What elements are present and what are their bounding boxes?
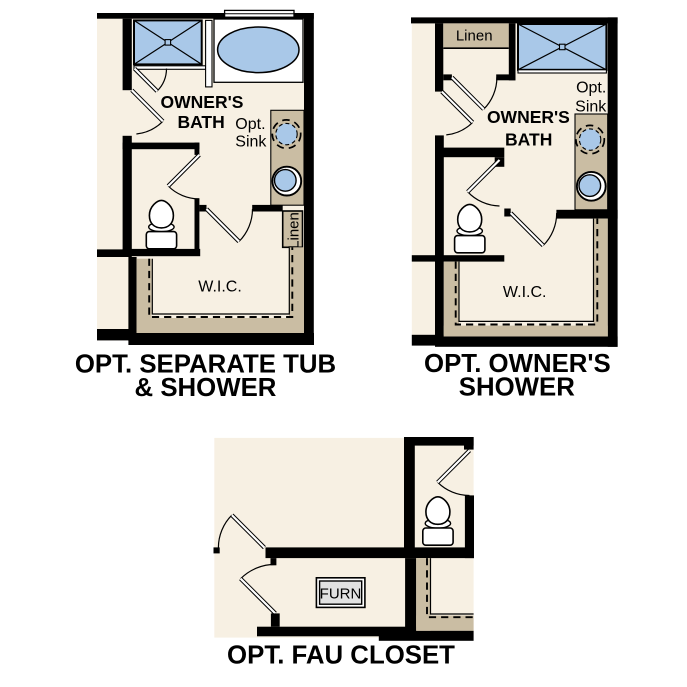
svg-text:Opt.: Opt.	[576, 79, 606, 96]
svg-text:FURN: FURN	[320, 585, 362, 602]
svg-text:& SHOWER: & SHOWER	[135, 374, 277, 402]
svg-text:W.I.C.: W.I.C.	[198, 279, 242, 296]
svg-text:Sink: Sink	[235, 133, 267, 150]
svg-text:Opt.: Opt.	[235, 116, 265, 133]
svg-text:Linen: Linen	[456, 27, 493, 44]
svg-text:OPT. FAU CLOSET: OPT. FAU CLOSET	[227, 641, 455, 669]
svg-text:BATH: BATH	[177, 112, 224, 132]
svg-text:OWNER'S: OWNER'S	[487, 107, 570, 127]
svg-text:W.I.C.: W.I.C.	[503, 284, 547, 301]
svg-text:Linen: Linen	[286, 212, 303, 249]
svg-text:Sink: Sink	[575, 98, 607, 115]
svg-text:BATH: BATH	[505, 130, 552, 150]
svg-text:OWNER'S: OWNER'S	[161, 92, 244, 112]
svg-text:SHOWER: SHOWER	[459, 374, 575, 402]
